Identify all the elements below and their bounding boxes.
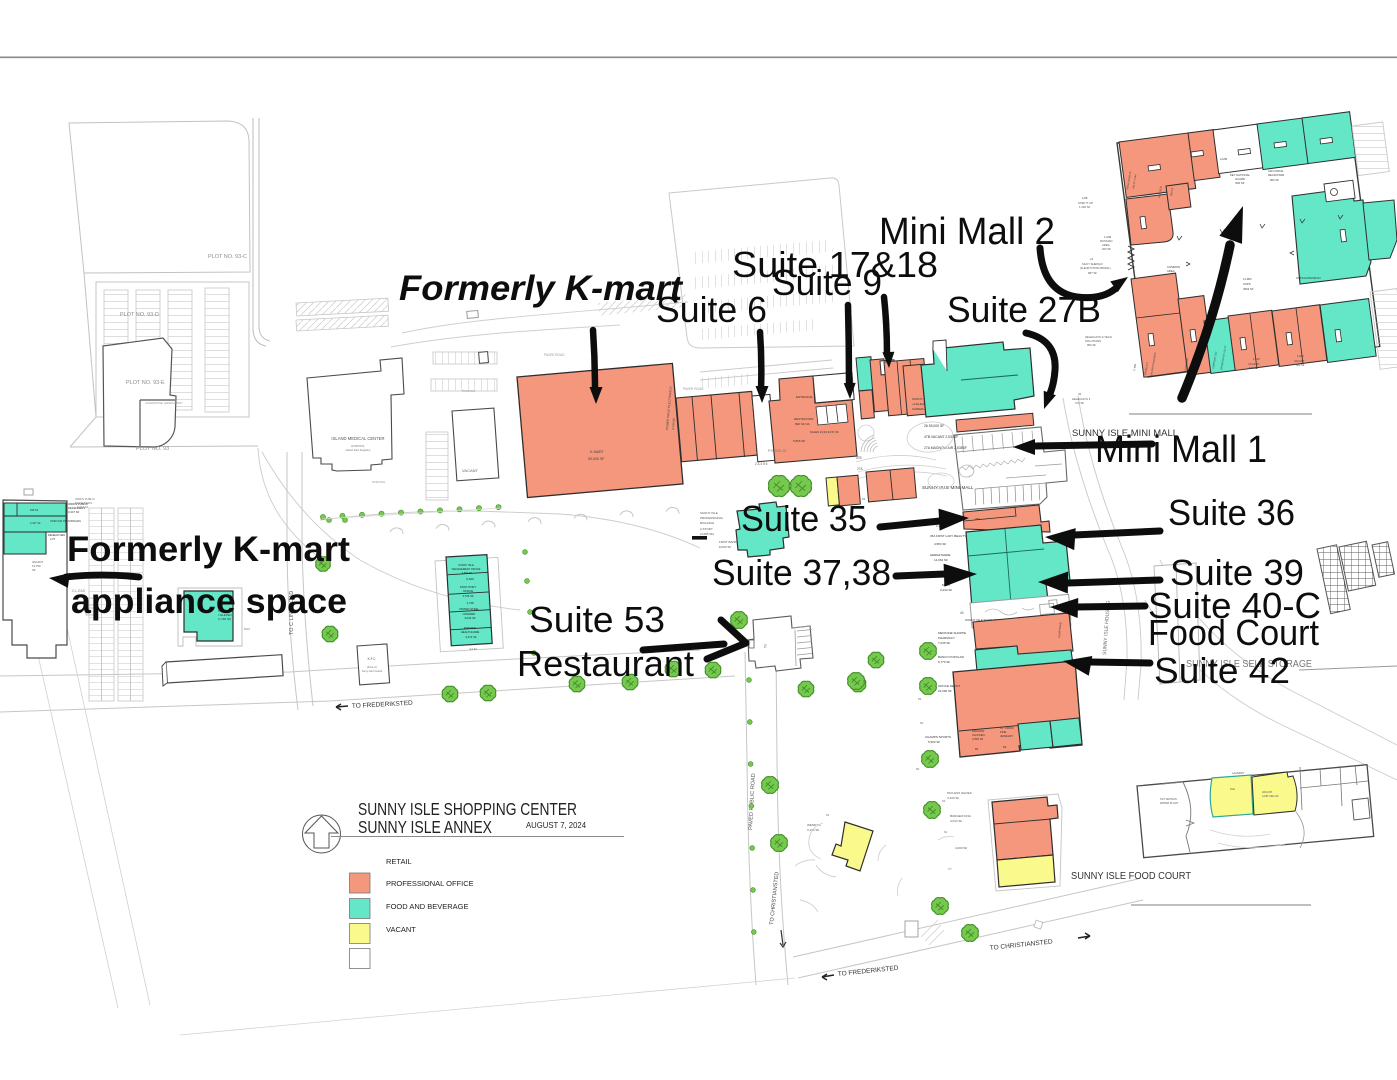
svg-text:MANAGEMENT OFFICE: MANAGEMENT OFFICE — [452, 567, 481, 571]
svg-text:990 SF NA: 990 SF NA — [795, 422, 810, 426]
svg-text:2-MM: 2-MM — [1220, 157, 1228, 161]
svg-text:(drive-in): (drive-in) — [367, 665, 377, 669]
svg-text:LAUNDRY: LAUNDRY — [1232, 771, 1245, 775]
svg-text:(3,685 SF): (3,685 SF) — [700, 532, 714, 536]
svg-text:PHARMACY: PHARMACY — [938, 636, 955, 640]
svg-text:Suite 9: Suite 9 — [772, 262, 882, 303]
svg-text:62: 62 — [826, 813, 830, 817]
svg-text:800 SF: 800 SF — [1235, 181, 1244, 185]
svg-text:472 SF: 472 SF — [1075, 401, 1084, 405]
svg-text:V7: V7 — [948, 867, 952, 871]
svg-text:900 SF: 900 SF — [1270, 178, 1279, 182]
svg-text:Mini Mall 1: Mini Mall 1 — [1095, 429, 1267, 471]
svg-text:27A: 27A — [857, 467, 864, 471]
svg-text:7,035 SF: 7,035 SF — [938, 641, 950, 645]
svg-text:USPS: USPS — [1243, 282, 1251, 286]
svg-text:4,000 SF: 4,000 SF — [955, 846, 967, 850]
svg-text:CHERMAINE GREENAWAY: CHERMAINE GREENAWAY — [145, 401, 183, 405]
svg-text:1-MM: 1-MM — [1297, 354, 1304, 358]
svg-text:64: 64 — [944, 830, 948, 834]
svg-text:HEALTHCARE: HEALTHCARE — [461, 630, 480, 634]
svg-text:TAX WATSON: TAX WATSON — [1160, 797, 1177, 801]
svg-text:MAX: MAX — [244, 627, 250, 631]
svg-text:PARKING: PARKING — [372, 480, 386, 484]
svg-text:SF: SF — [32, 568, 36, 572]
svg-text:Suite 36: Suite 36 — [1168, 492, 1295, 533]
svg-text:14,064 SF: 14,064 SF — [934, 558, 948, 562]
svg-text:PAVED ROAD: PAVED ROAD — [544, 353, 565, 357]
svg-text:2,3,4 5 6: 2,3,4 5 6 — [755, 462, 768, 466]
svg-text:950 SF: 950 SF — [1087, 343, 1096, 347]
svg-text:1/88: 1/88 — [1082, 196, 1088, 200]
svg-text:VACANT: VACANT — [462, 468, 478, 473]
svg-text:24: 24 — [1090, 257, 1094, 261]
svg-text:Suite 53: Suite 53 — [529, 599, 665, 640]
svg-text:4,738: 4,738 — [467, 601, 474, 605]
svg-text:RECRUITER: RECRUITER — [1268, 173, 1284, 177]
svg-text:2,800 SF: 2,800 SF — [972, 737, 984, 741]
svg-text:3,043 SF: 3,043 SF — [464, 616, 476, 620]
svg-text:200 SF: 200 SF — [1102, 247, 1111, 251]
svg-text:K-MART: K-MART — [590, 450, 605, 454]
svg-text:Sunny Isle Frederik: Sunny Isle Frederik — [362, 670, 383, 673]
svg-text:VACANT: VACANT — [1294, 359, 1305, 363]
svg-text:Formerly K-mart: Formerly K-mart — [67, 530, 350, 569]
svg-text:Mini Mall 2: Mini Mall 2 — [879, 211, 1055, 253]
svg-text:AREA: AREA — [1167, 269, 1175, 273]
svg-text:4,584 SF: 4,584 SF — [934, 542, 946, 546]
svg-text:602 SF: 602 SF — [1296, 363, 1305, 367]
svg-text:SUNNY ISLE: SUNNY ISLE — [700, 511, 718, 515]
svg-text:84: 84 — [1003, 745, 1007, 749]
svg-text:PLOT NO. 93-D: PLOT NO. 93-D — [120, 312, 159, 318]
svg-text:5,770 SF: 5,770 SF — [938, 660, 950, 664]
svg-text:VACANT: VACANT — [386, 925, 416, 934]
svg-text:63: 63 — [942, 799, 946, 803]
svg-text:appliance space: appliance space — [71, 582, 347, 621]
svg-text:82: 82 — [920, 721, 924, 725]
svg-text:PAYLESS SHOES: PAYLESS SHOES — [947, 791, 972, 795]
svg-text:8,000 SF: 8,000 SF — [719, 545, 731, 549]
svg-text:SUNNY ISLE FOOD COURT: SUNNY ISLE FOOD COURT — [1071, 870, 1192, 882]
svg-text:PARKING: PARKING — [462, 389, 476, 393]
svg-text:3,244 SF: 3,244 SF — [940, 588, 952, 592]
svg-text:83: 83 — [918, 697, 922, 701]
svg-text:RETAIL: RETAIL — [386, 857, 412, 866]
svg-text:1,292 SF: 1,292 SF — [1079, 205, 1091, 209]
svg-text:3,447 SF: 3,447 SF — [77, 505, 89, 509]
svg-text:SILKY SHENGO: SILKY SHENGO — [1082, 262, 1104, 266]
svg-text:33: 33 — [1078, 392, 1082, 396]
svg-text:23,000 SF: 23,000 SF — [938, 689, 952, 693]
svg-text:687 SF: 687 SF — [1088, 271, 1097, 275]
svg-text:PROFESSIONAL: PROFESSIONAL — [700, 516, 724, 520]
svg-text:P.R.20/51.03: P.R.20/51.03 — [768, 449, 786, 453]
svg-text:WATER PLANT: WATER PLANT — [1160, 801, 1179, 805]
svg-text:Suite 27B: Suite 27B — [947, 289, 1101, 330]
svg-text:35A: 35A — [975, 517, 980, 521]
svg-text:MEDICINE SHOPPE: MEDICINE SHOPPE — [938, 631, 966, 635]
svg-text:ISLAND MEDICAL CENTER: ISLAND MEDICAL CENTER — [331, 436, 384, 441]
svg-text:40: 40 — [960, 611, 964, 615]
svg-text:BANCO POPULAR: BANCO POPULAR — [938, 655, 965, 659]
svg-text:Food Court: Food Court — [1148, 612, 1319, 653]
svg-text:Island Diet Supplies: Island Diet Supplies — [346, 448, 371, 452]
svg-text:4,2,34: 4,2,34 — [469, 647, 477, 651]
svg-text:BUILDING: BUILDING — [700, 521, 715, 525]
svg-text:BURGER KING: BURGER KING — [950, 814, 972, 818]
svg-text:SUNNY ISLE SHOPPING CENTER: SUNNY ISLE SHOPPING CENTER — [358, 799, 577, 819]
svg-text:2,500 SF: 2,500 SF — [462, 571, 473, 575]
svg-text:27A MAGNOW AIR 2,535SF: 27A MAGNOW AIR 2,535SF — [924, 446, 967, 450]
svg-text:3,472 SF: 3,472 SF — [465, 635, 477, 639]
svg-text:4,75: 4,75 — [50, 537, 56, 541]
svg-text:4663 SF: 4663 SF — [1243, 287, 1254, 291]
svg-text:PLOT NO. 93-C: PLOT NO. 93-C — [208, 254, 247, 260]
svg-text:Suite 35: Suite 35 — [741, 498, 867, 539]
svg-text:CHAMPS SPORTS: CHAMPS SPORTS — [925, 735, 951, 739]
svg-text:26 53,000 SF: 26 53,000 SF — [924, 424, 944, 428]
svg-text:4,186 VEG SF: 4,186 VEG SF — [1262, 794, 1279, 798]
svg-text:UNITED STEEL: UNITED STEEL — [459, 607, 479, 611]
svg-text:2,447 SF: 2,447 SF — [30, 521, 41, 525]
svg-text:HERE&THERE: HERE&THERE — [930, 553, 951, 557]
svg-text:OPEN AIR PETS/SPACES: OPEN AIR PETS/SPACES — [50, 519, 81, 523]
svg-text:80: 80 — [916, 767, 920, 771]
svg-text:Suite 6: Suite 6 — [656, 289, 767, 330]
svg-text:RESTROOMS: RESTROOMS — [794, 417, 813, 421]
svg-text:6,326: 6,326 — [466, 577, 474, 581]
svg-text:SUNNY ISLE ANNEX: SUNNY ISLE ANNEX — [358, 817, 492, 837]
svg-text:Suite 42: Suite 42 — [1154, 650, 1290, 691]
svg-text:REHEALTHEN: REHEALTHEN — [48, 533, 65, 537]
svg-text:FIRST BANK: FIRST BANK — [719, 540, 737, 544]
svg-text:59,000 SF: 59,000 SF — [588, 457, 605, 461]
svg-text:SALES 34,34,34,57,26: SALES 34,34,34,57,26 — [810, 430, 839, 434]
svg-text:PLOT NO. 93: PLOT NO. 93 — [136, 446, 169, 452]
svg-text:83: 83 — [975, 747, 979, 751]
svg-text:4,044 SF: 4,044 SF — [950, 819, 962, 823]
svg-text:SUNNY ISLE: SUNNY ISLE — [458, 563, 474, 567]
svg-text:5,865 SF: 5,865 SF — [793, 439, 805, 443]
svg-text:3,726 SF: 3,726 SF — [462, 594, 474, 598]
svg-text:FOOD AND BEVERAGE: FOOD AND BEVERAGE — [386, 902, 469, 911]
svg-text:USPS EXPANSION: USPS EXPANSION — [1296, 276, 1321, 280]
svg-text:PLOT NO. 93-E: PLOT NO. 93-E — [126, 380, 165, 386]
svg-text:1-MM: 1-MM — [1253, 357, 1260, 361]
svg-text:OFFICE DEPOT: OFFICE DEPOT — [938, 684, 960, 688]
svg-text:5,500 SF: 5,500 SF — [928, 740, 940, 744]
svg-text:PROFESSIONAL OFFICE: PROFESSIONAL OFFICE — [386, 879, 474, 888]
svg-text:848 SF: 848 SF — [30, 508, 39, 512]
svg-text:47B: 47B — [856, 456, 862, 460]
svg-text:11-MM: 11-MM — [1243, 277, 1252, 281]
svg-text:ENTRANCE: ENTRANCE — [796, 395, 813, 399]
svg-text:3,447 SF: 3,447 SF — [68, 510, 80, 514]
svg-text:VACANT: VACANT — [1262, 790, 1273, 794]
svg-text:Suite 37,38: Suite 37,38 — [712, 552, 891, 593]
svg-text:Formerly K-mart: Formerly K-mart — [399, 269, 683, 308]
svg-text:DHL: DHL — [1230, 787, 1236, 791]
svg-text:US ARMY: US ARMY — [1248, 362, 1260, 366]
svg-text:K.F.C.: K.F.C. — [368, 657, 377, 661]
svg-text:JEWELRY: JEWELRY — [1000, 734, 1013, 738]
svg-text:(FLEURTY/KING BRIDAL): (FLEURTY/KING BRIDAL) — [1080, 266, 1111, 270]
svg-text:AUGUST 7, 2024: AUGUST 7, 2024 — [526, 820, 586, 830]
svg-text:3,433 SF: 3,433 SF — [947, 796, 959, 800]
svg-text:600 SF: 600 SF — [1249, 366, 1258, 370]
svg-text:2-STORY: 2-STORY — [700, 527, 713, 531]
svg-text:OFFICE: OFFICE — [463, 589, 473, 593]
